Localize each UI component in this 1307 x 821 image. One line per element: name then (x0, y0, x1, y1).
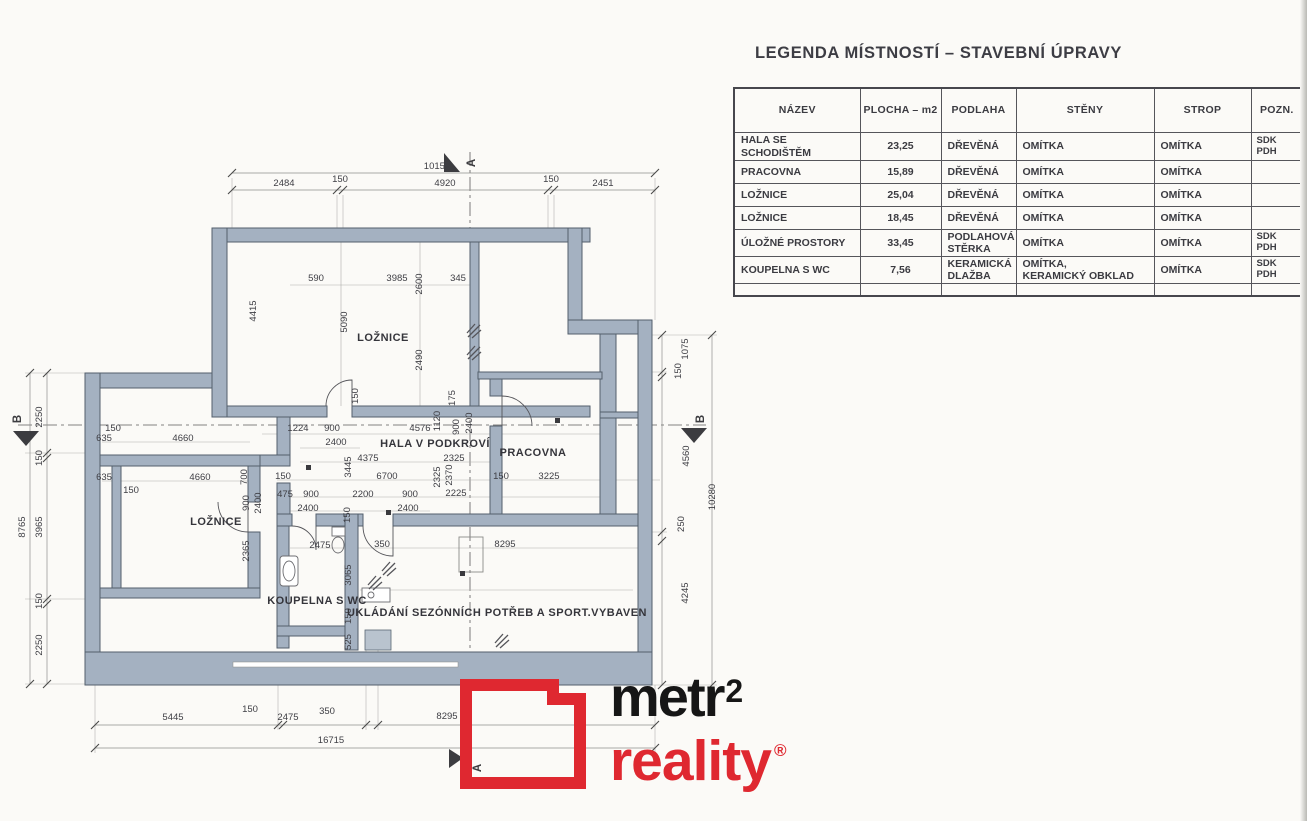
logo-square-icon (466, 685, 580, 783)
dim-text: 4415 (248, 300, 259, 321)
legend-cell-nazev: LOŽNICE (734, 207, 860, 230)
dim-text: 3225 (538, 471, 559, 482)
dim-text: 150 (493, 471, 509, 482)
legend-cell-podlaha: DŘEVĚNÁ (941, 184, 1016, 207)
legend-cell-pozn: SDK PDH (1251, 257, 1303, 284)
dim-text: 2250 (34, 634, 45, 655)
dim-text: 350 (319, 706, 335, 717)
dim-text: 2490 (414, 349, 425, 370)
legend-column-header: STROP (1154, 88, 1251, 133)
dim-text: 150 (34, 593, 45, 609)
legend-cell-pozn: SDK PDH (1251, 230, 1303, 257)
legend-cell-plocha: 25,04 (860, 184, 941, 207)
dim-text: 2370 (444, 464, 455, 485)
dim-text: 4245 (680, 582, 691, 603)
wall (212, 228, 590, 242)
legend-cell-podlaha: DŘEVĚNÁ (941, 161, 1016, 184)
dim-text: 2400 (253, 492, 264, 513)
dim-text: 5445 (162, 712, 183, 723)
room-label: LOŽNICE (357, 331, 409, 344)
dim-text: 700 (239, 469, 250, 485)
dim-text: 525 (343, 634, 354, 650)
wall (260, 455, 290, 466)
legend-cell-steny: OMÍTKA (1016, 184, 1154, 207)
legend-row: ÚLOŽNÉ PROSTORY33,45PODLAHOVÁ STĚRKAOMÍT… (734, 230, 1303, 257)
logo-word-metr: metr2 (610, 664, 743, 729)
dim-text: 2451 (592, 178, 613, 189)
wall (478, 372, 602, 379)
dim-text: 10155 (424, 161, 450, 172)
legend-cell-strop: OMÍTKA (1154, 230, 1251, 257)
legend-cell-strop: OMÍTKA (1154, 257, 1251, 284)
dim-text: 2365 (241, 540, 252, 561)
dim-text: 345 (450, 273, 466, 284)
legend-title: LEGENDA MÍSTNOSTÍ – STAVEBNÍ ÚPRAVY (755, 44, 1122, 63)
logo-superscript-2: 2 (725, 673, 743, 709)
dim-text: 10280 (707, 484, 718, 510)
legend-cell-strop: OMÍTKA (1154, 133, 1251, 161)
wall (100, 588, 260, 598)
legend-cell-pozn: SDK PDH (1251, 133, 1303, 161)
dim-text: 8295 (494, 539, 515, 550)
legend-cell-plocha: 33,45 (860, 230, 941, 257)
legend-row: LOŽNICE25,04DŘEVĚNÁOMÍTKAOMÍTKA (734, 184, 1303, 207)
legend-cell-nazev: HALA SE SCHODIŠTĚM (734, 133, 860, 161)
legend-row: PRACOVNA15,89DŘEVĚNÁOMÍTKAOMÍTKA (734, 161, 1303, 184)
legend-cell-pozn (1251, 161, 1303, 184)
dim-text: 2325 (432, 466, 443, 487)
legend-cell-steny: OMÍTKA (1016, 230, 1154, 257)
dim-text: 900 (241, 495, 252, 511)
dim-text: 2400 (464, 412, 475, 433)
legend-column-header: PLOCHA – m2 (860, 88, 941, 133)
dim-text: 150 (673, 363, 684, 379)
wall (393, 514, 638, 526)
dim-text: 250 (676, 516, 687, 532)
legend-table: NÁZEVPLOCHA – m2PODLAHASTĚNYSTROPPOZN. H… (733, 87, 1304, 297)
toilet-bowl (332, 537, 344, 553)
legend-row: HALA SE SCHODIŠTĚM23,25DŘEVĚNÁOMÍTKAOMÍT… (734, 133, 1303, 161)
wall (112, 466, 121, 598)
toilet-tank (332, 527, 345, 536)
wall (490, 379, 502, 396)
wall (277, 626, 345, 636)
room-label: LOŽNICE (190, 515, 242, 528)
dim-text: 2475 (277, 712, 298, 723)
dim-text: 150 (275, 471, 291, 482)
legend-cell-steny: OMÍTKA (1016, 161, 1154, 184)
scanned-floorplan-sheet: 1015524841504920150245159039853452600441… (0, 0, 1307, 821)
legend-cell-podlaha: KERAMICKÁ DLAŽBA (941, 257, 1016, 284)
dim-text: 150 (350, 388, 361, 404)
metr2-reality-logo: metr2 reality® (450, 668, 850, 818)
legend-cell-empty (1251, 284, 1303, 296)
wall (85, 373, 212, 388)
dim-text: 900 (402, 489, 418, 500)
legend-cell-strop: OMÍTKA (1154, 207, 1251, 230)
dim-text: 590 (308, 273, 324, 284)
dim-text: 2400 (397, 503, 418, 514)
legend-table-header: NÁZEVPLOCHA – m2PODLAHASTĚNYSTROPPOZN. (734, 88, 1303, 133)
dim-text: 150 (242, 704, 258, 715)
dim-text: 5090 (339, 311, 350, 332)
dim-text: 635 (96, 472, 112, 483)
room-label: KOUPELNA S WC (267, 595, 367, 607)
dim-text: 16715 (318, 735, 344, 746)
wall (600, 412, 638, 418)
dim-text: 3065 (343, 564, 354, 585)
legend-row: LOŽNICE18,45DŘEVĚNÁOMÍTKAOMÍTKA (734, 207, 1303, 230)
legend-cell-nazev: LOŽNICE (734, 184, 860, 207)
legend-cell-steny: OMÍTKA (1016, 207, 1154, 230)
column-block (365, 630, 391, 650)
dim-text: 150 (543, 174, 559, 185)
logo-word-reality: reality® (610, 728, 785, 794)
section-marker-label: B (695, 415, 707, 423)
wall (85, 373, 100, 685)
legend-cell-plocha: 15,89 (860, 161, 941, 184)
registered-trademark-icon: ® (774, 741, 786, 760)
legend-cell-strop: OMÍTKA (1154, 184, 1251, 207)
legend-cell-podlaha: PODLAHOVÁ STĚRKA (941, 230, 1016, 257)
legend-cell-empty (1154, 284, 1251, 296)
dim-text: 2400 (297, 503, 318, 514)
legend-cell-steny: OMÍTKA (1016, 133, 1154, 161)
room-label: UKLÁDÁNÍ SEZÓNNÍCH POTŘEB A SPORT.VYBAVE… (347, 606, 647, 619)
dim-text: 1120 (432, 411, 443, 431)
scan-edge-artifact (1300, 0, 1307, 821)
legend-column-header: PODLAHA (941, 88, 1016, 133)
dim-text: 175 (447, 390, 458, 406)
dim-text: 4660 (172, 433, 193, 444)
dim-text: 150 (34, 450, 45, 466)
legend-cell-steny: OMÍTKA, KERAMICKÝ OBKLAD (1016, 257, 1154, 284)
dim-text: 1075 (680, 338, 691, 359)
legend-cell-empty (1016, 284, 1154, 296)
window-slit (233, 662, 458, 667)
legend-column-header: POZN. (1251, 88, 1303, 133)
logo-mark (450, 672, 595, 797)
dim-text: 900 (324, 423, 340, 434)
dim-text: 4660 (189, 472, 210, 483)
dim-text: 350 (374, 539, 390, 550)
legend-cell-podlaha: DŘEVĚNÁ (941, 133, 1016, 161)
legend-cell-empty (860, 284, 941, 296)
furniture (459, 537, 483, 572)
dim-text: 150 (123, 485, 139, 496)
dim-text: 2325 (443, 453, 464, 464)
legend-cell-nazev: KOUPELNA S WC (734, 257, 860, 284)
dim-text: 4560 (681, 445, 692, 466)
wall (600, 418, 616, 524)
legend-cell-pozn (1251, 207, 1303, 230)
dim-text: 2225 (445, 488, 466, 499)
room-label: HALA V PODKROVÍ (380, 437, 490, 450)
legend-cell-plocha: 23,25 (860, 133, 941, 161)
legend-cell-empty (734, 284, 860, 296)
wall (212, 228, 227, 417)
legend-cell-pozn (1251, 184, 1303, 207)
legend-cell-plocha: 7,56 (860, 257, 941, 284)
room-label: PRACOVNA (500, 447, 567, 459)
dim-text: 4920 (434, 178, 455, 189)
legend-header-row: NÁZEVPLOCHA – m2PODLAHASTĚNYSTROPPOZN. (734, 88, 1303, 133)
dim-text: 900 (303, 489, 319, 500)
dim-text: 900 (451, 419, 462, 435)
section-marker-label: B (12, 415, 24, 423)
legend-cell-strop: OMÍTKA (1154, 161, 1251, 184)
wall (638, 320, 652, 685)
wall (568, 228, 582, 327)
dim-text: 3965 (34, 516, 45, 537)
legend-column-header: STĚNY (1016, 88, 1154, 133)
dim-text: 4375 (357, 453, 378, 464)
legend-column-header: NÁZEV (734, 88, 860, 133)
dim-text: 8765 (17, 516, 28, 537)
legend-cell-empty (941, 284, 1016, 296)
legend-table-body: HALA SE SCHODIŠTĚM23,25DŘEVĚNÁOMÍTKAOMÍT… (734, 133, 1303, 296)
dim-text: 635 (96, 433, 112, 444)
dim-text: 2250 (34, 406, 45, 427)
wall (227, 406, 327, 417)
wall (100, 455, 260, 466)
dim-text: 3985 (386, 273, 407, 284)
dim-text: 2400 (325, 437, 346, 448)
dim-text: 2475 (309, 540, 330, 551)
legend-cell-nazev: PRACOVNA (734, 161, 860, 184)
section-b-triangle-right (681, 428, 707, 443)
dim-text: 150 (332, 174, 348, 185)
dim-text: 150 (342, 507, 353, 523)
legend-cell-plocha: 18,45 (860, 207, 941, 230)
dim-text: 2200 (352, 489, 373, 500)
legend-cell-nazev: ÚLOŽNÉ PROSTORY (734, 230, 860, 257)
dim-text: 3445 (343, 456, 354, 477)
door-arc (326, 380, 352, 406)
dim-text: 2600 (414, 273, 425, 294)
wall (277, 514, 292, 526)
section-b-triangle-left (13, 431, 39, 446)
legend-row-empty (734, 284, 1303, 296)
legend-row: KOUPELNA S WC7,56KERAMICKÁ DLAŽBAOMÍTKA,… (734, 257, 1303, 284)
dim-text: 1224 (287, 423, 308, 434)
legend-cell-podlaha: DŘEVĚNÁ (941, 207, 1016, 230)
dim-text: 4576 (409, 423, 430, 434)
section-marker-label: A (466, 159, 478, 167)
dim-text: 475 (277, 489, 293, 500)
dim-text: 2484 (273, 178, 294, 189)
dim-text: 6700 (376, 471, 397, 482)
